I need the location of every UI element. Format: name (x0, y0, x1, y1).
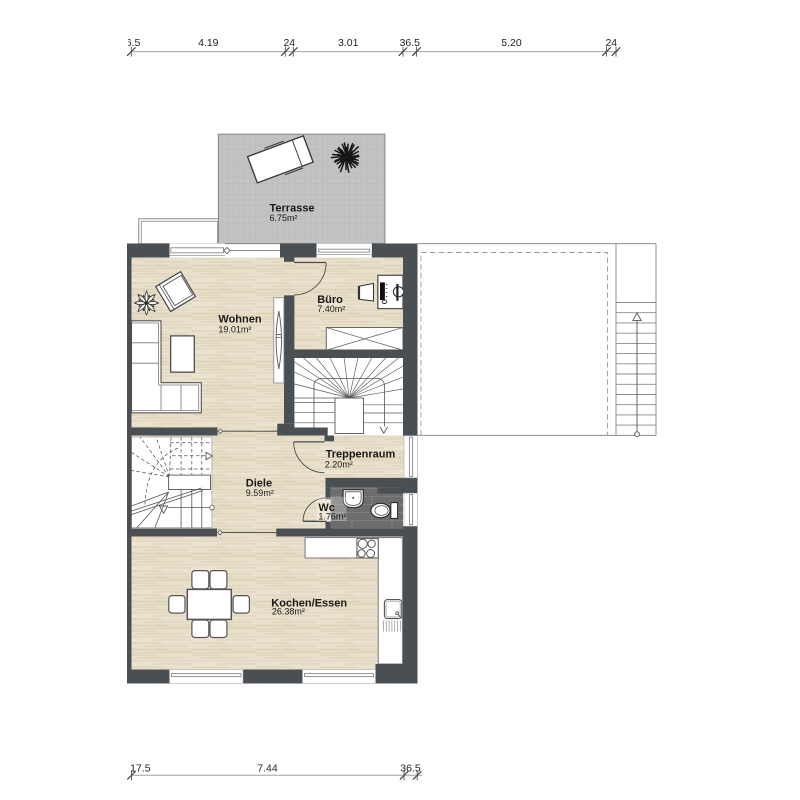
svg-text:9.59m²: 9.59m² (246, 488, 274, 498)
svg-text:19.01m²: 19.01m² (218, 325, 251, 335)
svg-text:2.20m²: 2.20m² (325, 459, 353, 469)
svg-text:17.5: 17.5 (130, 762, 151, 774)
svg-text:7.40m²: 7.40m² (317, 304, 345, 314)
svg-text:6.75m²: 6.75m² (270, 213, 298, 223)
svg-text:3.01: 3.01 (338, 37, 359, 49)
svg-text:36.5: 36.5 (400, 762, 421, 774)
svg-text:24: 24 (605, 37, 617, 49)
svg-text:4.19: 4.19 (198, 37, 219, 49)
svg-text:5.20: 5.20 (501, 37, 522, 49)
svg-text:24: 24 (283, 37, 295, 49)
svg-text:7.44: 7.44 (257, 762, 278, 774)
svg-text:1.76m²: 1.76m² (318, 512, 346, 522)
svg-text:26.38m²: 26.38m² (272, 606, 305, 616)
svg-text:36.5: 36.5 (400, 37, 421, 49)
